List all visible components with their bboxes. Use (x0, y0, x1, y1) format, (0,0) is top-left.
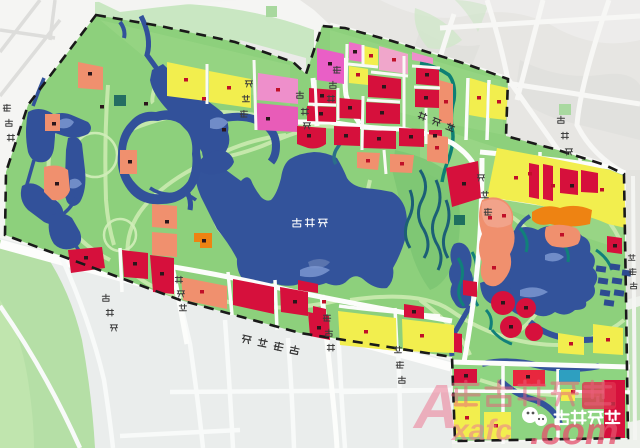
svg-text:xafc: xafc (450, 414, 512, 447)
